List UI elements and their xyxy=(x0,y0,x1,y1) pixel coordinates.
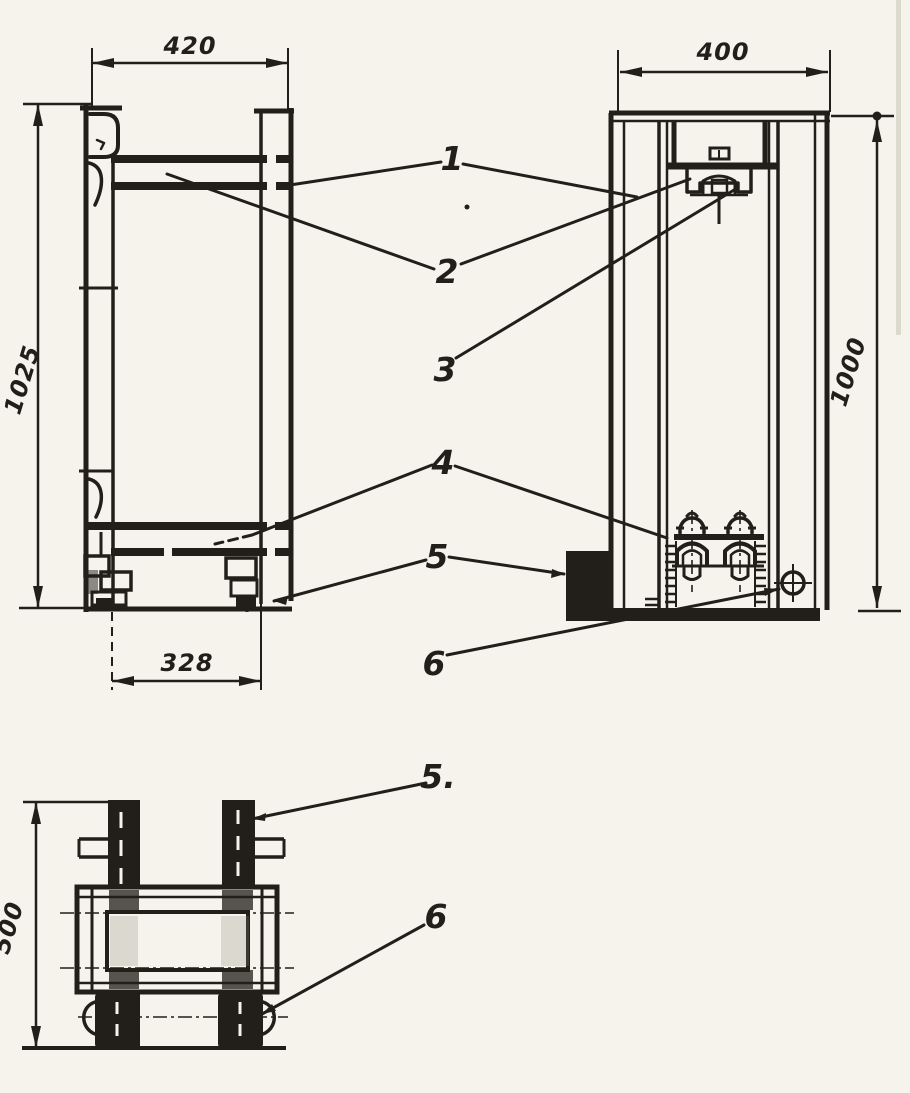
side-bottom-right-roller xyxy=(226,558,257,612)
side-bottom-left-roller xyxy=(85,532,131,608)
callout-5: 5 xyxy=(274,537,565,605)
callouts: 1 2 3 4 5 6 xyxy=(167,139,779,1014)
dimension-front-width: 400 xyxy=(618,38,830,112)
callout-1-label: 1 xyxy=(441,139,464,178)
dimension-side-width: 420 xyxy=(92,32,288,110)
section-view-structure xyxy=(22,800,294,1048)
callout-5-label: 5 xyxy=(426,537,449,576)
front-bottom-carriage xyxy=(645,510,766,607)
callout-1: 1 xyxy=(290,139,637,197)
dim-label-328: 328 xyxy=(160,649,213,677)
scan-edge-artifact xyxy=(896,0,901,335)
ink-speck xyxy=(465,205,470,210)
callout-3-label: 3 xyxy=(434,350,457,389)
front-view: 400 1000 xyxy=(566,38,901,621)
section-view: 500 xyxy=(0,800,294,1048)
front-bottom-rail xyxy=(566,608,820,621)
section-right-roller xyxy=(218,993,263,1048)
dim-label-400: 400 xyxy=(695,38,749,66)
drawing-page: 420 1025 328 xyxy=(0,0,910,1093)
callout-section-6-label: 6 xyxy=(425,897,448,936)
callout-section-5: 5. xyxy=(252,757,456,821)
side-view: 420 1025 328 xyxy=(0,32,294,690)
callout-6-label: 6 xyxy=(423,644,446,683)
callout-section-5-label: 5. xyxy=(420,757,456,796)
front-view-structure xyxy=(566,113,830,621)
callout-section-6: 6 xyxy=(262,897,447,1014)
front-top-bracket xyxy=(668,121,777,224)
dimension-side-base: 328 xyxy=(112,604,261,690)
dim-label-500: 500 xyxy=(0,898,30,957)
callout-2-label: 2 xyxy=(436,252,459,291)
dimension-front-height: 1000 xyxy=(825,112,901,612)
dim-label-420: 420 xyxy=(162,32,216,60)
drawing-canvas: 420 1025 328 xyxy=(0,0,910,1093)
dim-label-1000: 1000 xyxy=(825,334,872,410)
callout-4-label: 4 xyxy=(431,443,455,482)
section-left-roller xyxy=(95,993,140,1048)
